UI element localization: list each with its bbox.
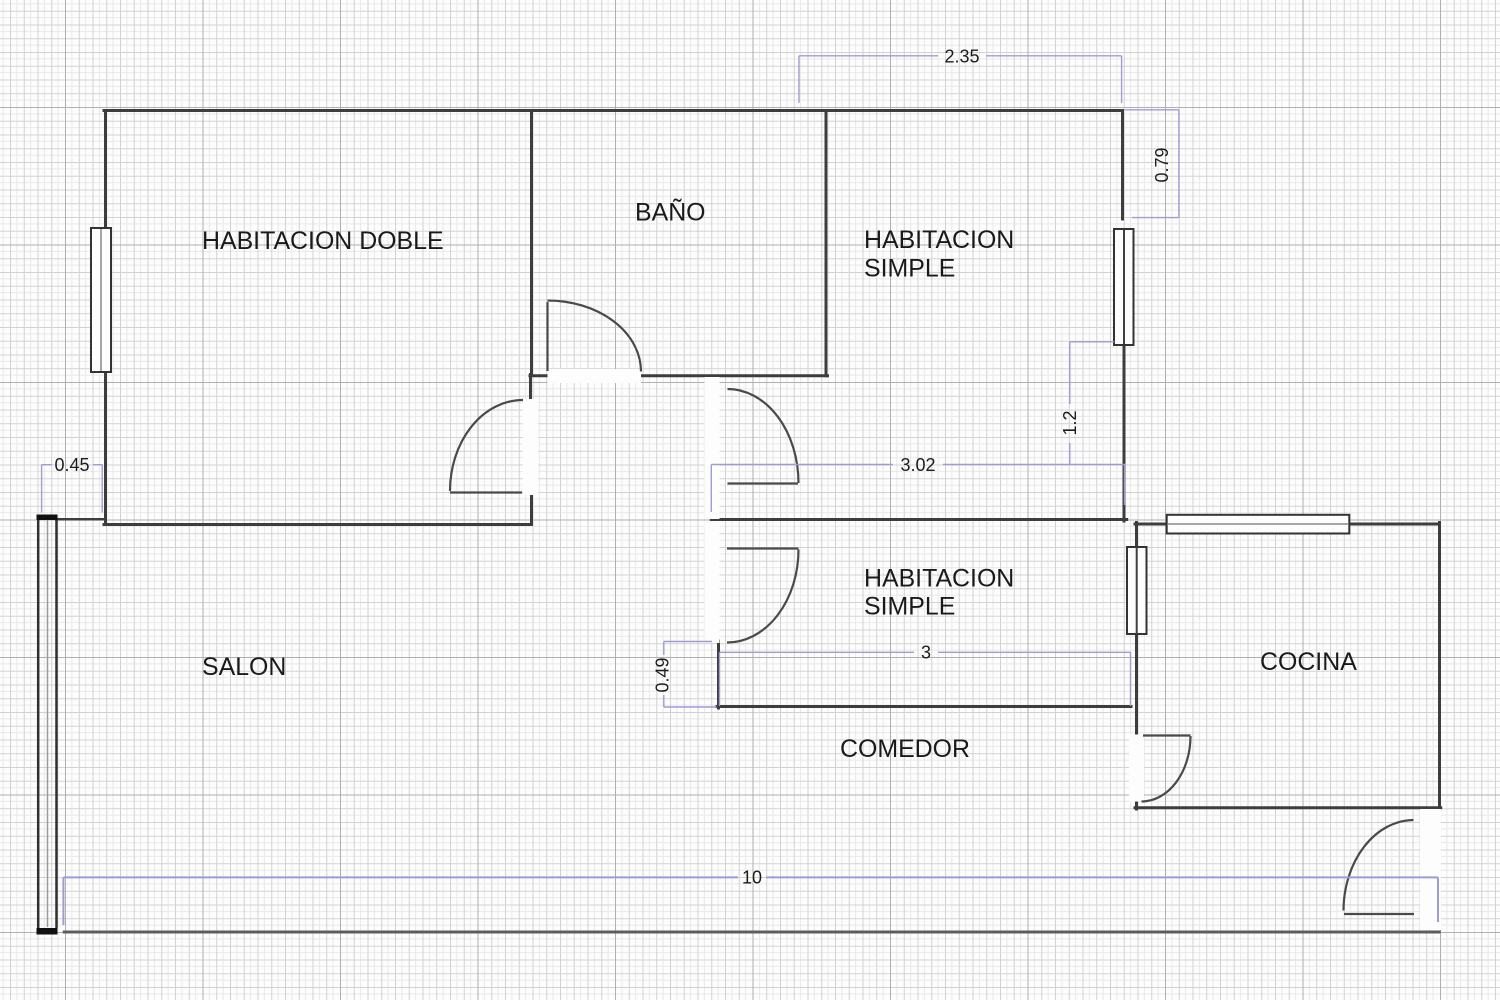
svg-text:0.45: 0.45 <box>54 455 89 475</box>
svg-text:COMEDOR: COMEDOR <box>840 735 970 763</box>
svg-text:SIMPLE: SIMPLE <box>864 593 955 621</box>
svg-text:2.35: 2.35 <box>944 47 979 67</box>
svg-text:HABITACION DOBLE: HABITACION DOBLE <box>202 227 444 255</box>
svg-text:COCINA: COCINA <box>1260 648 1357 676</box>
svg-text:BAÑO: BAÑO <box>635 198 706 227</box>
svg-text:10: 10 <box>742 868 762 888</box>
svg-text:3: 3 <box>921 643 931 663</box>
svg-text:HABITACION: HABITACION <box>864 565 1014 593</box>
svg-text:0.79: 0.79 <box>1152 147 1172 182</box>
svg-text:0.49: 0.49 <box>653 657 673 692</box>
svg-text:SIMPLE: SIMPLE <box>864 255 955 283</box>
svg-text:3.02: 3.02 <box>900 455 935 475</box>
svg-text:1.2: 1.2 <box>1060 410 1080 435</box>
svg-text:HABITACION: HABITACION <box>864 226 1014 254</box>
svg-text:SALON: SALON <box>202 653 286 681</box>
